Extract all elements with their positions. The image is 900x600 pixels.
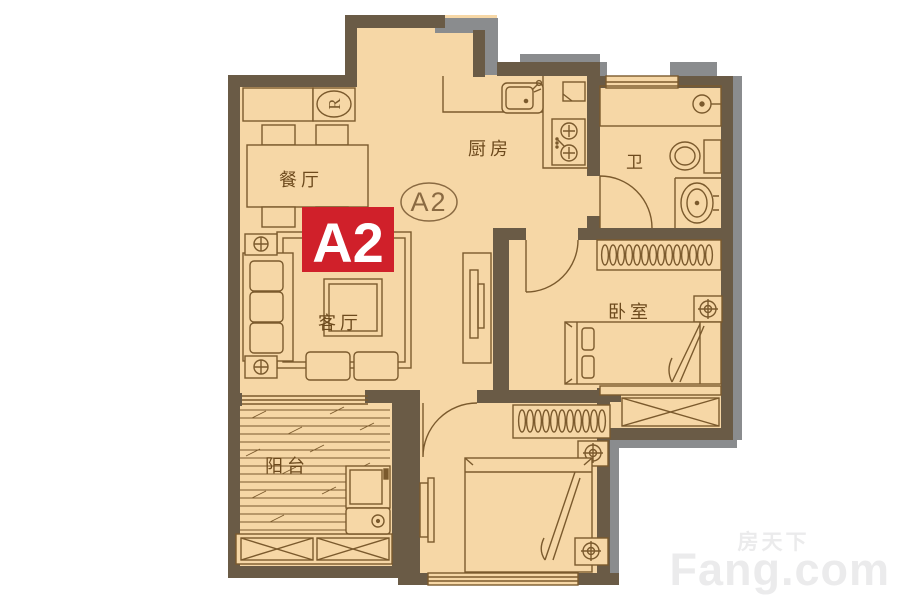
dining-chair [316, 125, 348, 145]
nightstand-lamp-icon [694, 296, 722, 322]
fridge-label: R [325, 98, 344, 110]
ottoman [306, 352, 350, 380]
balcony-windows [236, 534, 392, 564]
floor-plan-page: R [0, 0, 900, 600]
label-balcony: 阳台 [265, 456, 309, 476]
unit-badge-label: A2 [312, 211, 384, 274]
floor-plan: R [0, 0, 900, 600]
watermark: 房天下 Fang.com [669, 532, 890, 592]
dining-chair [262, 207, 295, 227]
dining-chair [262, 125, 295, 145]
sideboard [243, 88, 313, 121]
label-dining: 餐厅 [279, 170, 323, 190]
water-heater-icon [563, 82, 585, 101]
side-table-icon [245, 234, 277, 255]
wardrobe-icon [597, 240, 721, 270]
bed-icon [565, 322, 721, 384]
door-gaps [526, 228, 578, 240]
wardrobe-icon [513, 405, 610, 438]
side-table-icon [245, 356, 277, 378]
sofa-icon [243, 253, 293, 361]
tv-cabinet-icon [463, 253, 491, 363]
label-bedroom: 卧室 [608, 302, 652, 322]
bed-icon [465, 458, 592, 572]
stove-icon [552, 119, 585, 165]
ottoman [354, 352, 398, 380]
kitchen-sink-icon [502, 81, 543, 113]
nightstand-lamp-icon [575, 538, 608, 565]
label-bathroom: 卫 [626, 153, 643, 172]
laundry-sink-icon [346, 508, 390, 534]
label-kitchen: 厨房 [468, 139, 512, 159]
bay-window-right [622, 398, 719, 426]
label-living: 客厅 [318, 313, 362, 333]
watermark-logo: Fang.com [669, 547, 890, 592]
unit-circle-label: A2 [410, 187, 447, 217]
room-dining [243, 88, 368, 227]
desk-icon [420, 478, 434, 542]
washing-machine-icon [346, 466, 390, 508]
unit-badge: A2 [302, 207, 394, 274]
